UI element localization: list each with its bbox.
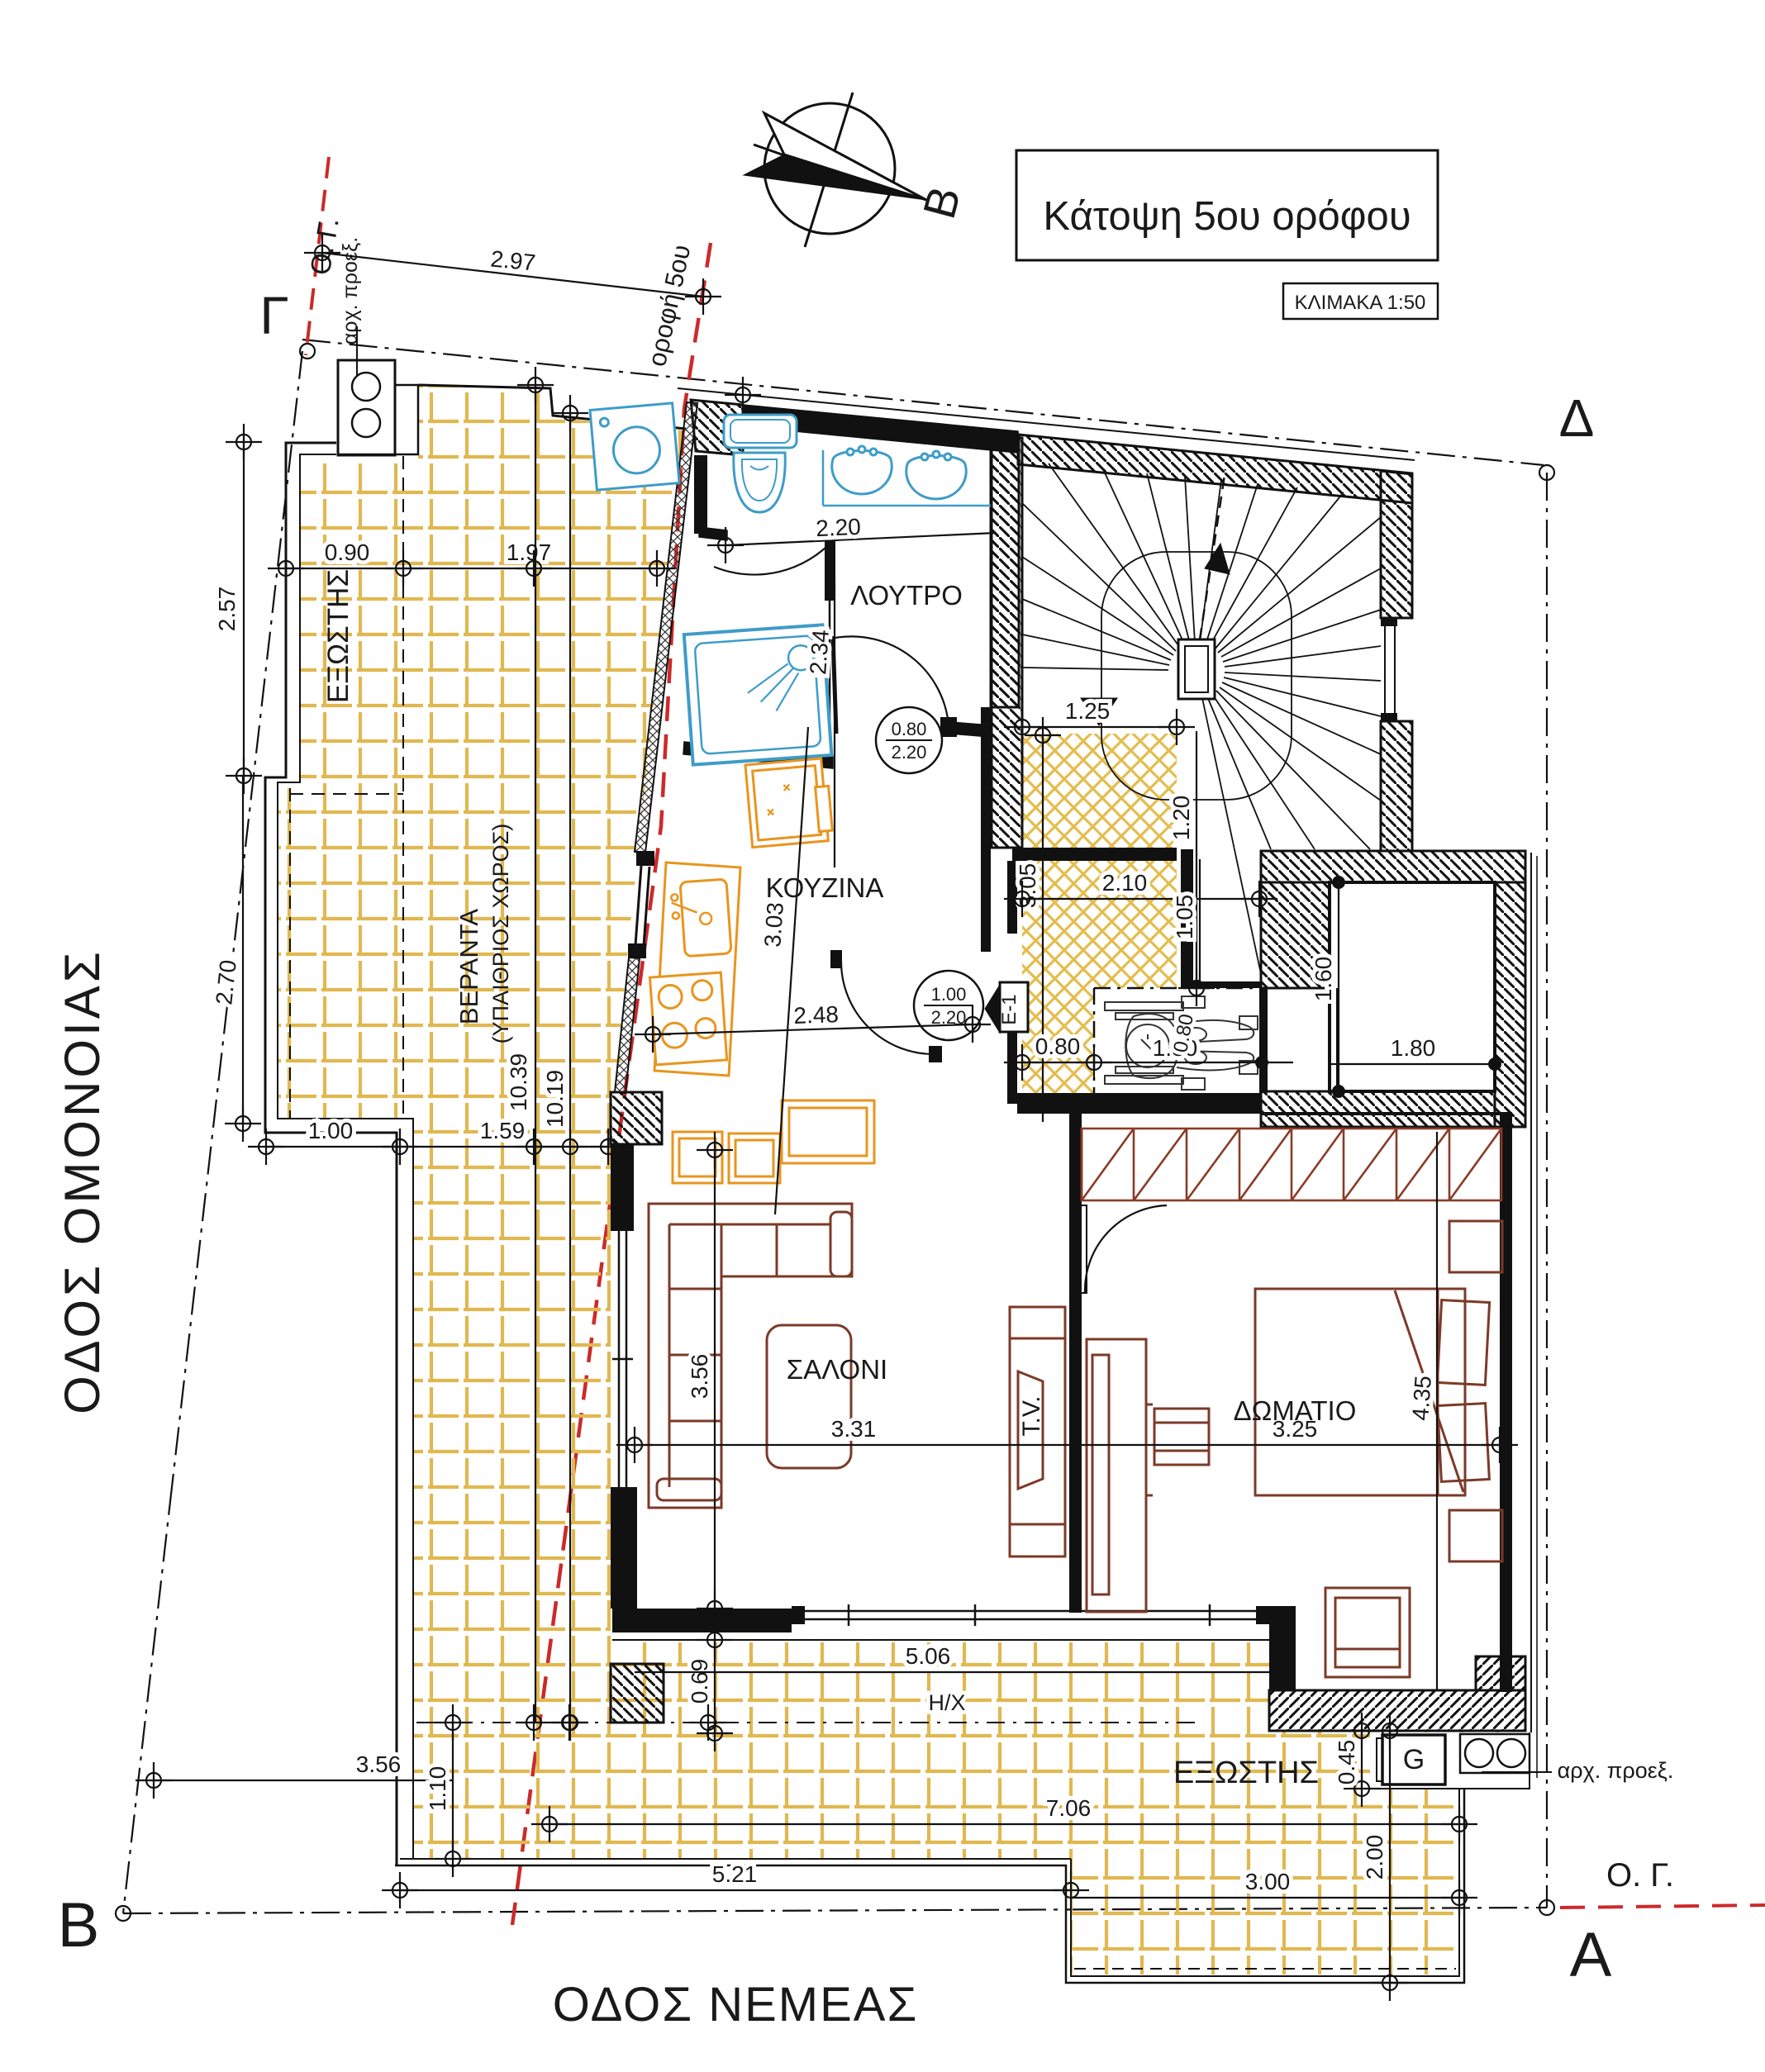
svg-text:2.70: 2.70 — [211, 958, 241, 1005]
svg-text:ΕΞΩΣΤΗΣ: ΕΞΩΣΤΗΣ — [322, 569, 354, 703]
svg-text:3.31: 3.31 — [831, 1416, 877, 1442]
svg-text:G: G — [1403, 1744, 1425, 1775]
svg-text:ΟΔΟΣ ΟΜΟΝΟΙΑΣ: ΟΔΟΣ ΟΜΟΝΟΙΑΣ — [55, 948, 110, 1414]
svg-text:5.06: 5.06 — [906, 1643, 951, 1669]
svg-text:ΟΔΟΣ ΝΕΜΕΑΣ: ΟΔΟΣ ΝΕΜΕΑΣ — [553, 1978, 919, 2032]
svg-text:Ε-1: Ε-1 — [998, 994, 1020, 1024]
svg-text:0.69: 0.69 — [687, 1659, 712, 1704]
svg-text:3.03: 3.03 — [759, 901, 788, 948]
svg-text:Β: Β — [58, 1890, 100, 1960]
svg-text:2.57: 2.57 — [214, 587, 240, 632]
svg-text:1.97: 1.97 — [507, 539, 552, 565]
svg-text:3.00: 3.00 — [1245, 1869, 1291, 1894]
svg-text:2.34: 2.34 — [805, 629, 834, 676]
svg-text:3.05: 3.05 — [1015, 863, 1040, 909]
svg-text:ΚΟΥΖΙΝΑ: ΚΟΥΖΙΝΑ — [766, 872, 884, 903]
svg-text:2.00: 2.00 — [1362, 1835, 1387, 1880]
svg-text:ΔΩΜΑΤΙΟ: ΔΩΜΑΤΙΟ — [1234, 1395, 1357, 1426]
svg-text:Γ: Γ — [259, 286, 288, 345]
svg-text:1.25: 1.25 — [1065, 698, 1111, 724]
svg-text:αρχ. προεξ.: αρχ. προεξ. — [339, 237, 362, 345]
svg-text:T.V.: T.V. — [1018, 1396, 1045, 1437]
svg-text:1.20: 1.20 — [1168, 796, 1194, 841]
svg-text:αρχ. προεξ.: αρχ. προεξ. — [1558, 1758, 1674, 1783]
svg-text:2.48: 2.48 — [793, 1001, 840, 1029]
svg-text:1.10: 1.10 — [425, 1766, 450, 1812]
svg-text:Κάτοψη 5ου ορόφου: Κάτοψη 5ου ορόφου — [1043, 194, 1411, 239]
svg-text:10.19: 10.19 — [542, 1070, 568, 1128]
svg-text:4.35: 4.35 — [1407, 1375, 1436, 1422]
svg-text:2.20: 2.20 — [816, 514, 862, 542]
svg-text:Δ: Δ — [1559, 388, 1595, 448]
svg-text:ΕΞΩΣΤΗΣ: ΕΞΩΣΤΗΣ — [1173, 1756, 1319, 1790]
svg-text:1.00: 1.00 — [931, 984, 967, 1005]
svg-text:Ο. Γ.: Ο. Γ. — [1606, 1857, 1674, 1894]
svg-text:ΛΟΥΤΡΟ: ΛΟΥΤΡΟ — [850, 580, 963, 611]
svg-text:(ΥΠΑΙΘΡΙΟΣ ΧΩΡΟΣ): (ΥΠΑΙΘΡΙΟΣ ΧΩΡΟΣ) — [488, 824, 513, 1044]
svg-text:1.05: 1.05 — [1172, 895, 1197, 940]
svg-text:5.21: 5.21 — [712, 1861, 758, 1887]
svg-text:10.39: 10.39 — [506, 1053, 531, 1111]
svg-text:7.06: 7.06 — [1046, 1795, 1092, 1821]
svg-text:1.80: 1.80 — [1391, 1035, 1436, 1061]
svg-text:2.97: 2.97 — [489, 245, 536, 275]
svg-text:ΣΑΛΟΝΙ: ΣΑΛΟΝΙ — [787, 1354, 887, 1385]
svg-text:1.59: 1.59 — [480, 1118, 526, 1143]
svg-text:ΚΛΙΜΑΚΑ 1:50: ΚΛΙΜΑΚΑ 1:50 — [1295, 292, 1426, 314]
svg-text:1.60: 1.60 — [1311, 957, 1336, 1002]
svg-text:0.45: 0.45 — [1334, 1740, 1359, 1785]
svg-text:0.80: 0.80 — [1035, 1034, 1081, 1059]
svg-text:ΒΕΡΑΝΤΑ: ΒΕΡΑΝΤΑ — [454, 909, 483, 1024]
svg-text:2.10: 2.10 — [1102, 870, 1148, 896]
svg-text:3.56: 3.56 — [356, 1751, 402, 1777]
svg-text:Η/Χ: Η/Χ — [928, 1690, 965, 1715]
svg-text:0.90: 0.90 — [325, 539, 370, 565]
svg-text:0.80: 0.80 — [892, 719, 927, 739]
svg-text:3.56: 3.56 — [687, 1354, 712, 1400]
svg-text:2.20: 2.20 — [892, 742, 927, 763]
svg-text:Α: Α — [1570, 1920, 1612, 1990]
svg-text:1.00: 1.00 — [308, 1118, 354, 1143]
